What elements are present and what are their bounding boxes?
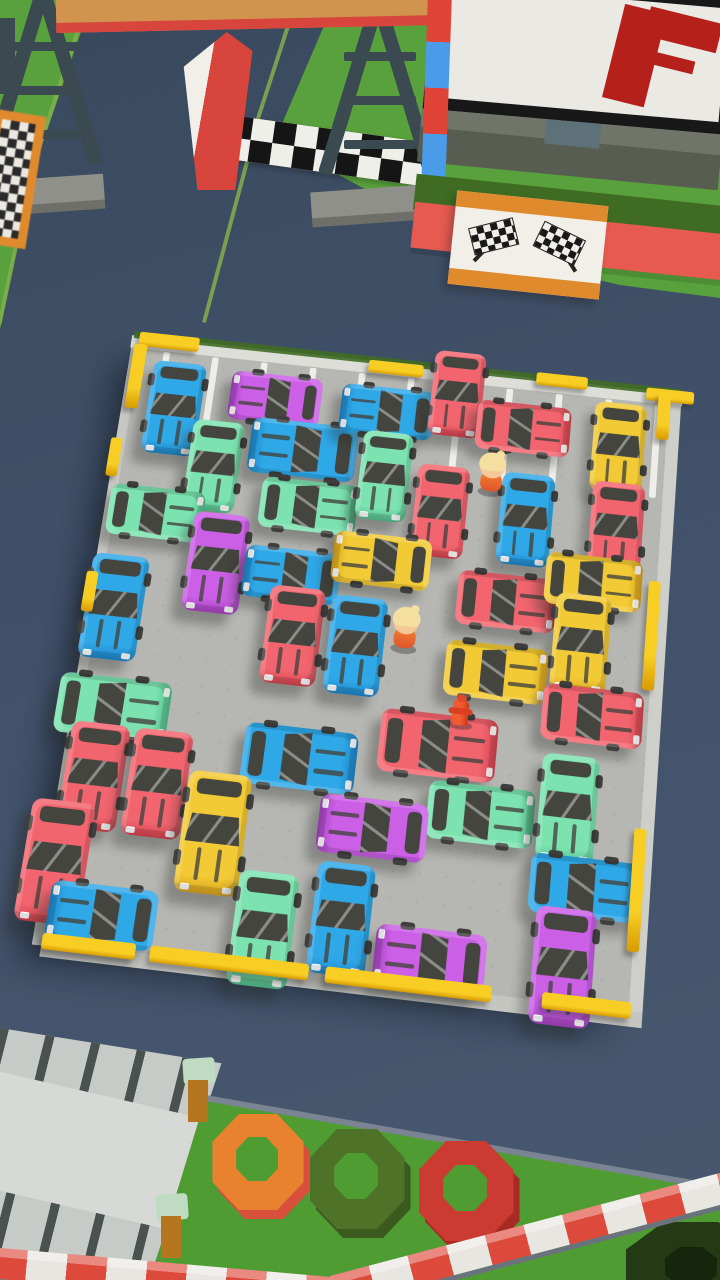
fence-post — [156, 1194, 190, 1260]
car-red[interactable] — [376, 708, 500, 784]
game-screen — [0, 0, 720, 1280]
fire-hydrant — [448, 694, 473, 728]
track-flag-wedge — [182, 32, 268, 190]
gantry-post — [0, 18, 15, 94]
car-blue[interactable] — [305, 860, 376, 978]
car-mint[interactable] — [257, 476, 360, 537]
car-mint[interactable] — [354, 430, 414, 524]
fence-post — [183, 1058, 217, 1124]
car-mint[interactable] — [424, 779, 536, 849]
car-mint[interactable] — [535, 752, 601, 866]
car-red[interactable] — [454, 569, 558, 634]
car-purple[interactable] — [315, 793, 430, 864]
checkered-flags-sign — [448, 190, 609, 299]
red-flag-icon — [646, 51, 696, 75]
car-blue[interactable] — [239, 722, 360, 796]
car-red[interactable] — [540, 683, 645, 750]
car-red[interactable] — [474, 399, 572, 458]
character[interactable] — [388, 607, 422, 653]
checkered-flag-icon — [533, 221, 587, 266]
parking-lot — [42, 348, 669, 1011]
checkered-flag-icon — [468, 217, 519, 255]
car-yellow[interactable] — [329, 530, 433, 592]
car-yellow[interactable] — [549, 592, 612, 696]
car-blue[interactable] — [322, 594, 389, 698]
character[interactable] — [475, 453, 508, 497]
